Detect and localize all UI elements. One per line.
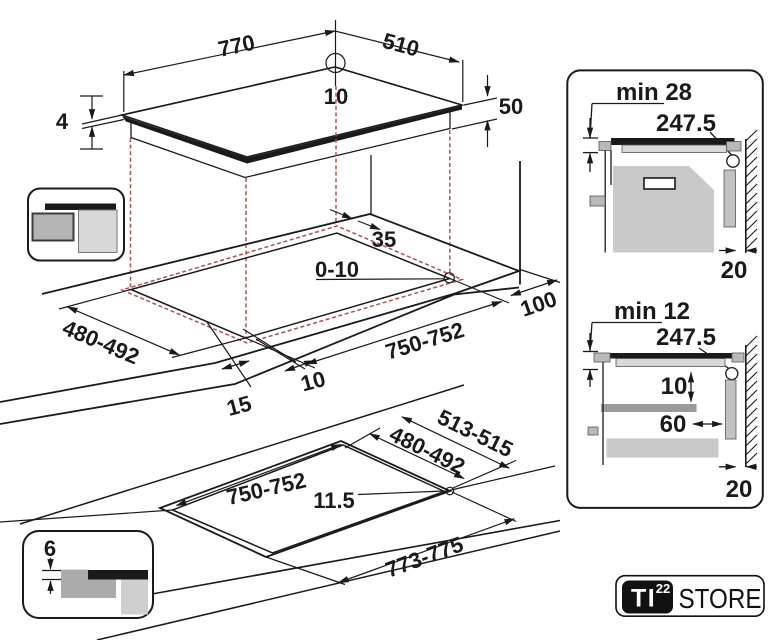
svg-text:773-775: 773-775 <box>382 531 466 582</box>
svg-text:770: 770 <box>216 30 257 62</box>
svg-text:0-10: 0-10 <box>315 257 359 282</box>
svg-text:TI: TI <box>631 585 656 613</box>
svg-text:20: 20 <box>726 476 753 503</box>
svg-text:min 28: min 28 <box>616 79 692 106</box>
svg-text:750-752: 750-752 <box>383 317 468 365</box>
svg-text:247.5: 247.5 <box>656 110 716 137</box>
svg-text:STORE: STORE <box>679 583 762 614</box>
svg-text:min 12: min 12 <box>614 298 690 325</box>
svg-text:22: 22 <box>656 581 670 596</box>
svg-text:10: 10 <box>298 366 328 396</box>
svg-text:11.5: 11.5 <box>313 488 355 513</box>
svg-text:480-492: 480-492 <box>59 315 143 370</box>
svg-text:510: 510 <box>380 28 422 62</box>
svg-text:50: 50 <box>499 94 523 119</box>
svg-text:6: 6 <box>44 536 56 561</box>
svg-text:247.5: 247.5 <box>656 324 716 351</box>
svg-text:35: 35 <box>372 227 396 252</box>
svg-text:15: 15 <box>224 391 254 421</box>
svg-text:10: 10 <box>661 373 688 400</box>
svg-text:20: 20 <box>721 257 748 284</box>
svg-text:4: 4 <box>56 109 69 134</box>
svg-text:60: 60 <box>660 411 687 438</box>
